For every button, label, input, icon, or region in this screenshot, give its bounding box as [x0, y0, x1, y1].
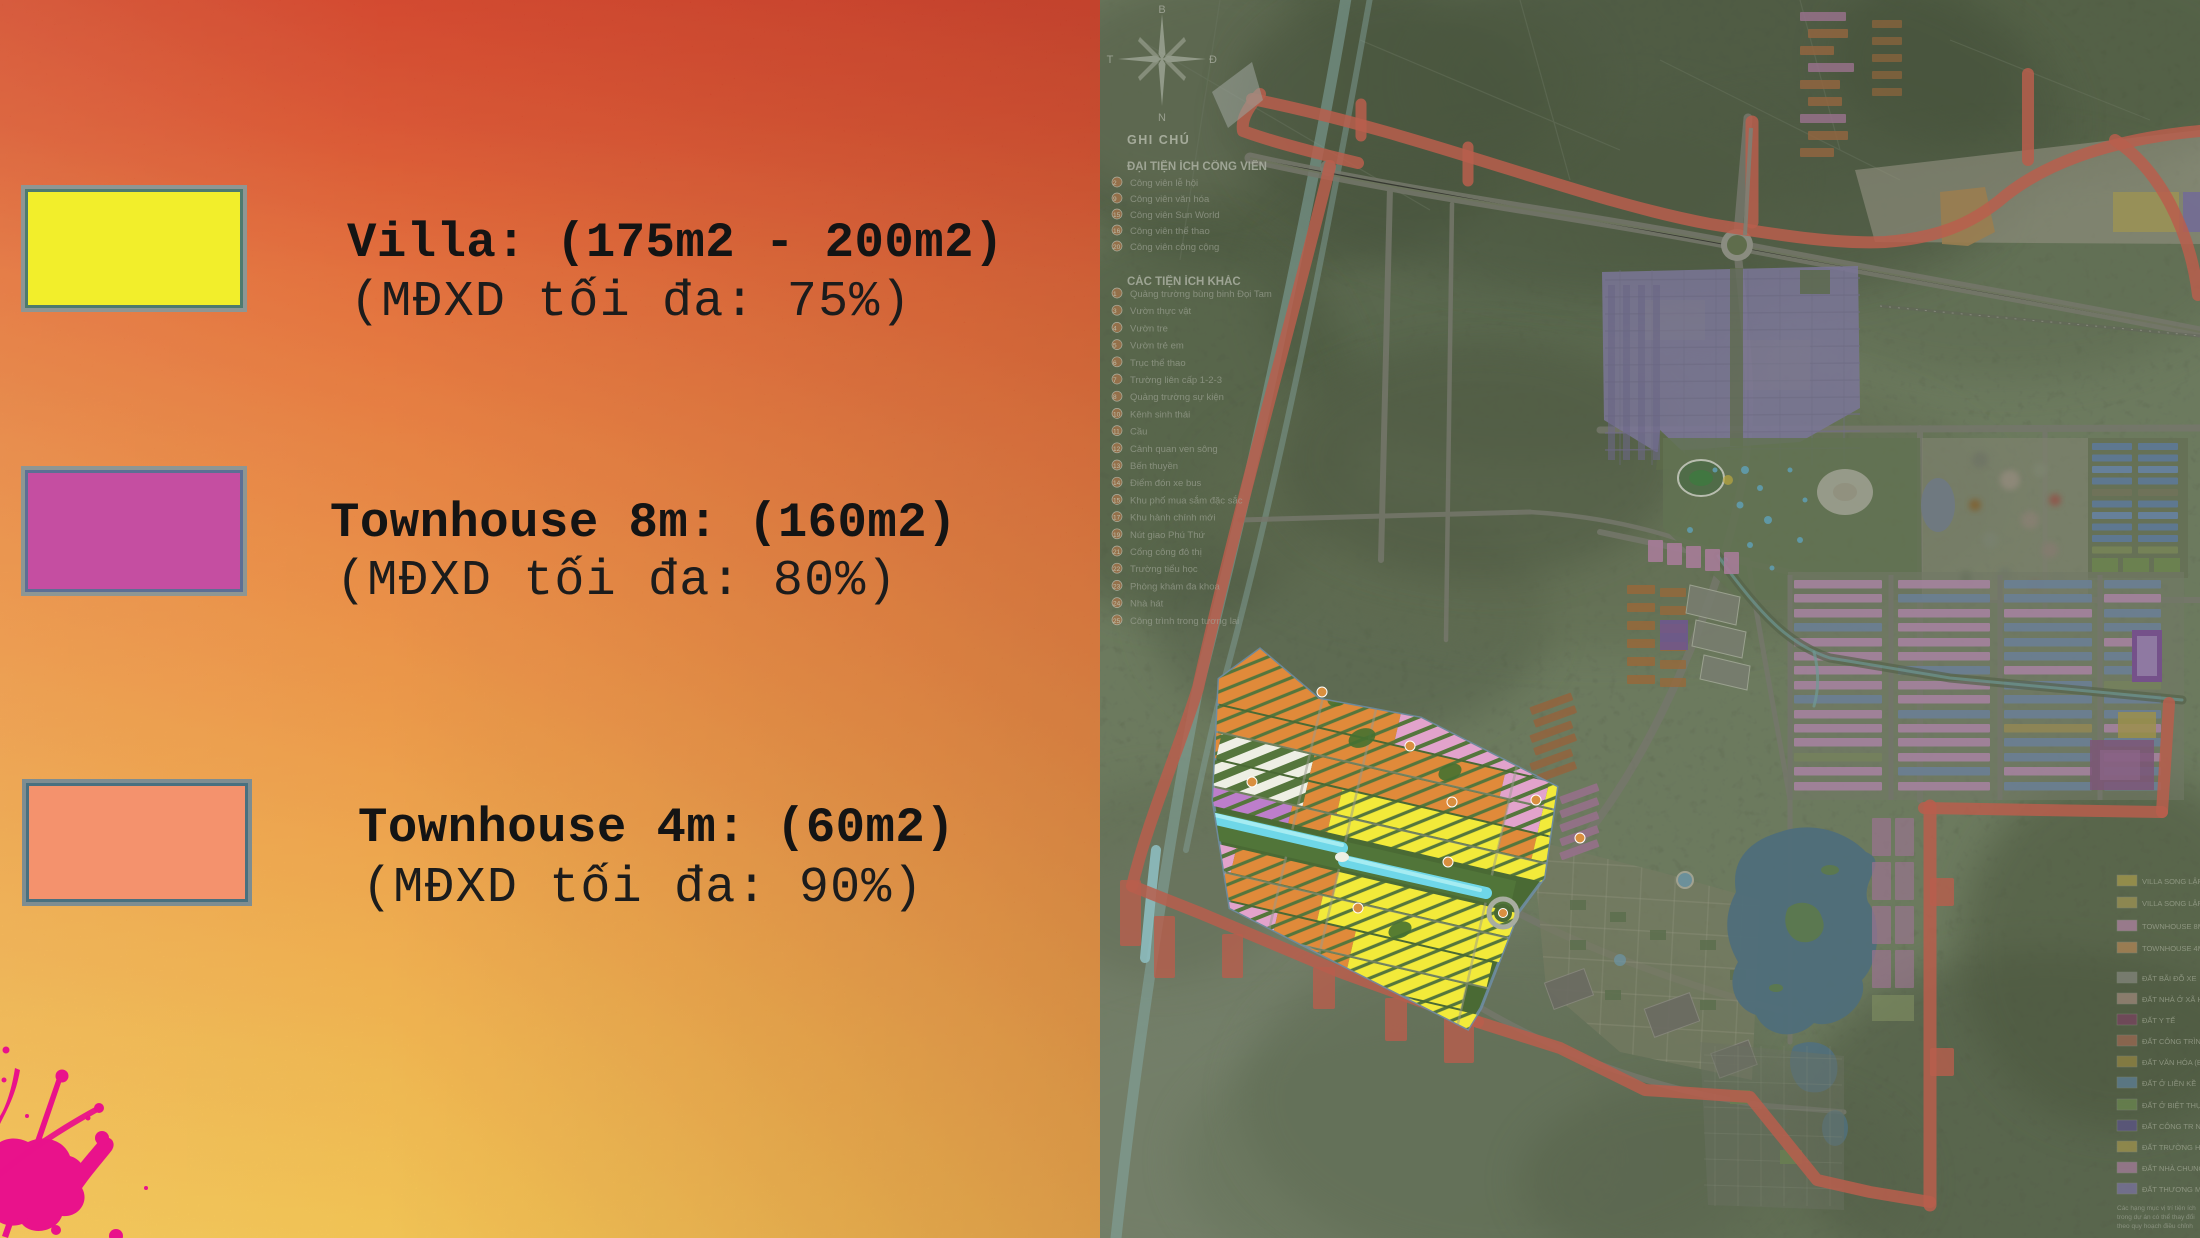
svg-text:Công viên công cộng: Công viên công cộng — [1130, 242, 1219, 253]
svg-text:15: 15 — [1113, 212, 1121, 219]
svg-text:22: 22 — [1113, 566, 1121, 573]
svg-text:ĐẠI TIỆN ÍCH CÔNG VIÊN: ĐẠI TIỆN ÍCH CÔNG VIÊN — [1127, 160, 1267, 173]
svg-text:Công viên thể thao: Công viên thể thao — [1130, 226, 1210, 237]
svg-text:Điểm đón xe bus: Điểm đón xe bus — [1130, 478, 1202, 489]
svg-text:ĐẤT Ở LIỀN KỀ: ĐẤT Ở LIỀN KỀ — [2142, 1078, 2196, 1088]
svg-text:Trục thể thao: Trục thể thao — [1130, 358, 1186, 369]
svg-text:ĐẤT VĂN HÓA (B: ĐẤT VĂN HÓA (B — [2142, 1057, 2200, 1067]
svg-text:15: 15 — [1113, 497, 1121, 504]
svg-text:B: B — [1158, 4, 1165, 16]
svg-text:ĐẤT BÃI ĐỖ XE: ĐẤT BÃI ĐỖ XE — [2142, 973, 2196, 983]
svg-text:16: 16 — [1113, 228, 1121, 235]
svg-text:Kênh sinh thái: Kênh sinh thái — [1130, 409, 1190, 420]
svg-text:Vườn tre: Vườn tre — [1130, 323, 1168, 334]
svg-text:theo quy hoạch điều chỉnh: theo quy hoạch điều chỉnh — [2117, 1221, 2193, 1230]
svg-text:ĐẤT NHÀ Ở XÃ H: ĐẤT NHÀ Ở XÃ H — [2142, 994, 2200, 1004]
svg-text:Các hạng mục vị trí tiện ích: Các hạng mục vị trí tiện ích — [2117, 1205, 2196, 1212]
svg-text:Công viên văn hóa: Công viên văn hóa — [1130, 194, 1210, 205]
svg-text:Quảng trường sự kiện: Quảng trường sự kiện — [1130, 392, 1224, 403]
svg-text:CÁC TIỆN ÍCH KHÁC: CÁC TIỆN ÍCH KHÁC — [1127, 275, 1241, 288]
svg-text:ĐẤT CÔNG TRÌNH: ĐẤT CÔNG TRÌNH — [2142, 1036, 2200, 1046]
svg-text:Bến thuyền: Bến thuyền — [1130, 461, 1178, 472]
svg-text:GHI CHÚ: GHI CHÚ — [1127, 132, 1190, 147]
svg-text:Cầu: Cầu — [1130, 427, 1147, 438]
svg-text:2: 2 — [1113, 180, 1117, 187]
svg-text:8: 8 — [1113, 394, 1117, 401]
svg-text:Phòng khám đa khoa: Phòng khám đa khoa — [1130, 581, 1221, 592]
svg-text:Đ: Đ — [1209, 54, 1217, 66]
svg-text:10: 10 — [1113, 411, 1121, 418]
svg-text:TOWNHOUSE 8M (1: TOWNHOUSE 8M (1 — [2142, 922, 2200, 931]
svg-text:Công trình trong tương lai: Công trình trong tương lai — [1130, 616, 1239, 627]
svg-text:Cổng công đô thị: Cổng công đô thị — [1130, 547, 1202, 558]
svg-text:Vườn trẻ em: Vườn trẻ em — [1130, 341, 1184, 352]
svg-text:12: 12 — [1113, 446, 1121, 453]
svg-text:13: 13 — [1113, 463, 1121, 470]
svg-text:Nhà hát: Nhà hát — [1130, 599, 1164, 610]
svg-text:Vườn thực vật: Vườn thực vật — [1130, 306, 1192, 317]
svg-text:VILLA SONG LẬP (1: VILLA SONG LẬP (1 — [2142, 877, 2200, 886]
svg-text:ĐẤT Y TẾ: ĐẤT Y TẾ — [2142, 1015, 2175, 1025]
svg-text:N: N — [1158, 112, 1166, 124]
svg-text:20: 20 — [1113, 244, 1121, 251]
svg-text:TOWNHOUSE 4M (6: TOWNHOUSE 4M (6 — [2142, 944, 2200, 953]
svg-text:ĐẤT TRƯỜNG HỌC: ĐẤT TRƯỜNG HỌC — [2142, 1142, 2200, 1152]
svg-text:Công viên lễ hội: Công viên lễ hội — [1130, 178, 1198, 189]
svg-text:24: 24 — [1113, 601, 1121, 608]
svg-text:Công viên Sun World: Công viên Sun World — [1130, 210, 1220, 221]
svg-text:Trường tiểu học: Trường tiểu học — [1130, 564, 1198, 575]
svg-text:trong dự án có thể thay đổi: trong dự án có thể thay đổi — [2117, 1213, 2195, 1221]
svg-text:Cảnh quan ven sông: Cảnh quan ven sông — [1130, 444, 1218, 455]
svg-text:11: 11 — [1113, 429, 1120, 436]
svg-text:21: 21 — [1113, 549, 1121, 556]
svg-text:25: 25 — [1113, 618, 1121, 625]
svg-text:19: 19 — [1113, 532, 1121, 539]
svg-text:14: 14 — [1113, 480, 1121, 487]
svg-text:Trường liên cấp 1-2-3: Trường liên cấp 1-2-3 — [1130, 375, 1222, 386]
svg-text:VILLA SONG LẬP (2: VILLA SONG LẬP (2 — [2142, 899, 2200, 908]
svg-text:ĐẤT Ở BIỆT THỰ: ĐẤT Ở BIỆT THỰ — [2142, 1100, 2200, 1110]
svg-text:6: 6 — [1113, 360, 1117, 367]
svg-text:ĐẤT THƯƠNG MẠI: ĐẤT THƯƠNG MẠI — [2142, 1184, 2200, 1194]
svg-text:T: T — [1107, 54, 1114, 66]
svg-text:7: 7 — [1113, 377, 1117, 384]
svg-text:3: 3 — [1113, 308, 1117, 315]
svg-text:Nút giao Phú Thứ: Nút giao Phú Thứ — [1130, 530, 1205, 541]
svg-text:Khu phố mua sắm đặc sắc: Khu phố mua sắm đặc sắc — [1130, 495, 1243, 506]
svg-text:23: 23 — [1113, 583, 1121, 590]
svg-text:Quảng trường bùng binh Đọi Tam: Quảng trường bùng binh Đọi Tam — [1130, 289, 1272, 300]
svg-text:9: 9 — [1113, 196, 1117, 203]
svg-text:17: 17 — [1113, 515, 1121, 522]
svg-text:Khu hành chính mới: Khu hành chính mới — [1130, 513, 1215, 524]
svg-text:5: 5 — [1113, 343, 1117, 350]
svg-text:4: 4 — [1113, 325, 1117, 332]
svg-text:ĐẤT CÔNG TR NG: ĐẤT CÔNG TR NG — [2142, 1121, 2200, 1131]
svg-text:1: 1 — [1113, 291, 1117, 298]
svg-text:ĐẤT NHÀ CHUNG C: ĐẤT NHÀ CHUNG C — [2142, 1163, 2200, 1173]
